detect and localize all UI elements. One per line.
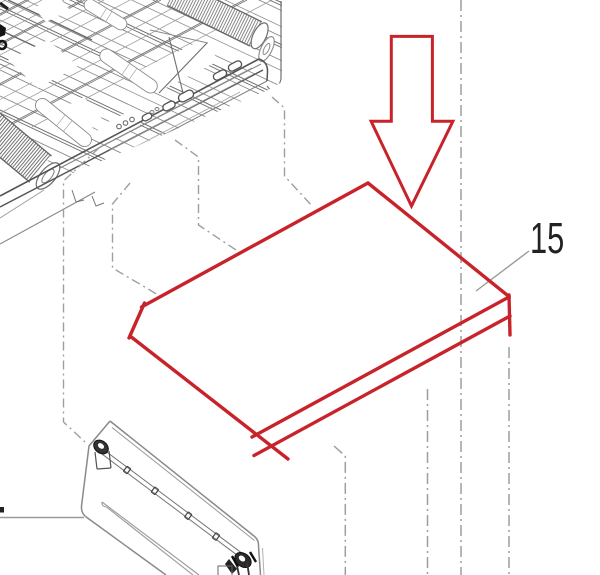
- svg-text:15: 15: [530, 215, 564, 264]
